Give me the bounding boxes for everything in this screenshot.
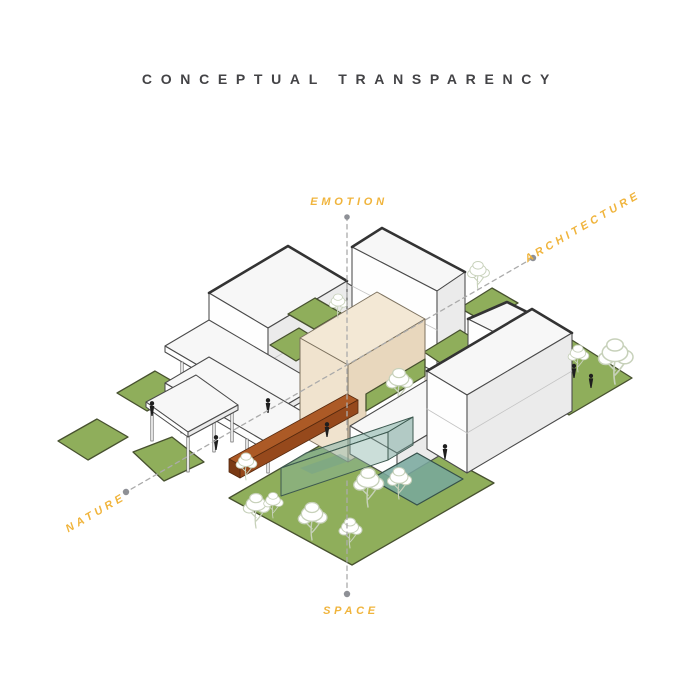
axonometric-illustration — [0, 0, 700, 700]
axis-label-emotion: EMOTION — [310, 196, 388, 208]
grass-sliver-far-left — [58, 419, 128, 460]
tree — [468, 262, 490, 291]
axis-dot-top — [344, 214, 350, 220]
axis-dot-bottom — [344, 591, 350, 597]
conceptual-diagram: CONCEPTUAL TRANSPARENCY — [0, 0, 700, 700]
grass-under-canopy — [133, 437, 204, 481]
axis-label-space: SPACE — [323, 605, 379, 617]
